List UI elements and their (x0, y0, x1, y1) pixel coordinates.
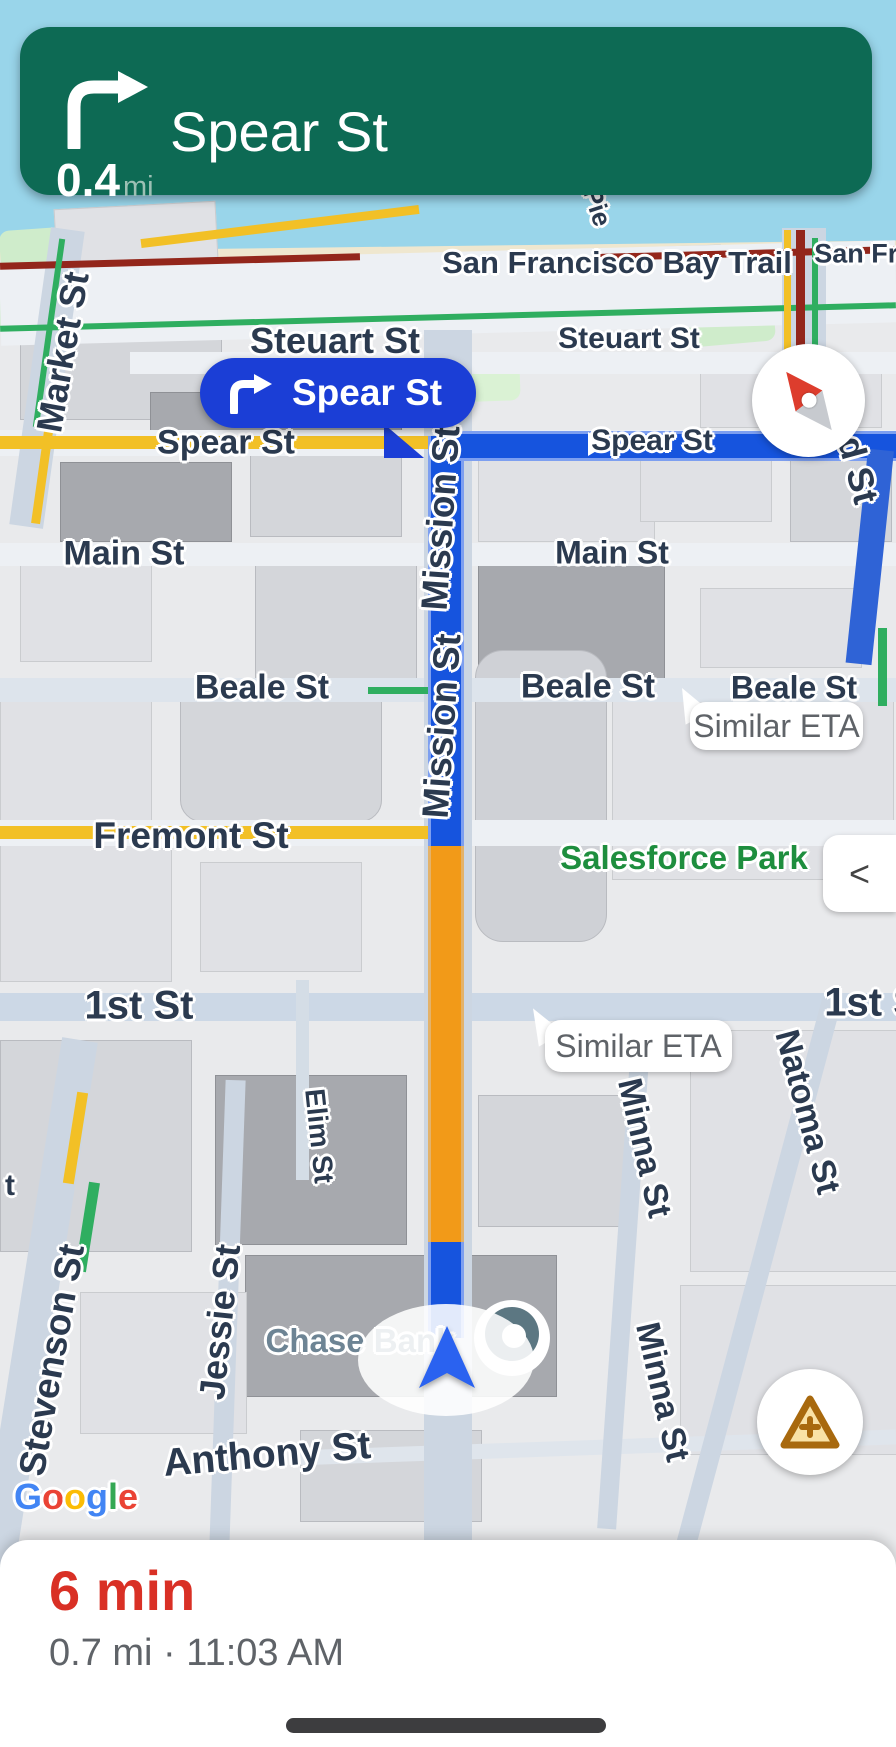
street-label: Fremont St (93, 815, 288, 857)
map-canvas[interactable]: San Francisco Bay Trail San Fran Pie Mar… (0, 0, 896, 1747)
turn-callout-tail (384, 424, 424, 458)
street-label: Main St (64, 535, 185, 574)
street-label: San Francisco Bay Trail (442, 245, 792, 281)
distance-value: 0.4 (56, 154, 120, 206)
eta-bubble-label: Similar ETA (693, 708, 860, 745)
street-label: Main St (555, 535, 669, 572)
google-logo-letter: l (108, 1476, 118, 1517)
turn-right-icon (226, 372, 274, 414)
turn-callout-label: Spear St (292, 372, 442, 414)
collapse-panel-button[interactable]: < (823, 835, 896, 912)
building (0, 840, 172, 982)
street-label: San Fran (814, 239, 896, 270)
poi-label-salesforce-park: Salesforce Park (560, 839, 808, 877)
route-segment-congestion (428, 846, 464, 1242)
street-label: Beale St (521, 668, 655, 707)
compass-button[interactable] (752, 344, 865, 457)
distance-to-turn: 0.4mi (56, 153, 154, 207)
google-logo-letter: G (14, 1476, 42, 1517)
street-label: Steuart St (558, 322, 700, 356)
google-logo-letter: e (118, 1476, 138, 1517)
street-label: 1st S (824, 981, 896, 1026)
street-label: Beale St (731, 670, 857, 707)
traffic-jam-line (796, 230, 805, 352)
building (0, 1040, 192, 1252)
building (20, 565, 152, 662)
trip-summary-sheet[interactable]: 6 min 0.7 mi · 11:03 AM (0, 1540, 896, 1747)
building (478, 455, 655, 542)
building (60, 462, 232, 542)
eta-alternative-bubble[interactable]: Similar ETA (545, 1020, 732, 1072)
trip-distance-arrival: 0.7 mi · 11:03 AM (49, 1632, 344, 1675)
street-label: t (5, 1169, 15, 1203)
google-logo: Google (14, 1476, 138, 1518)
transit-line (878, 628, 887, 706)
turn-right-arrow-icon (60, 69, 160, 149)
building (200, 862, 362, 972)
google-logo-letter: g (86, 1476, 108, 1517)
building (0, 690, 152, 822)
navigation-screen: San Francisco Bay Trail San Fran Pie Mar… (0, 0, 896, 1747)
street-label: Spear St (157, 424, 295, 463)
google-logo-letter: o (64, 1476, 86, 1517)
building (250, 455, 402, 537)
street-label: 1st St (85, 984, 194, 1029)
distance-unit: mi (123, 171, 154, 203)
turn-callout: Spear St (200, 358, 476, 428)
eta-alternative-bubble[interactable]: Similar ETA (690, 702, 863, 750)
next-street-name: Spear St (170, 99, 388, 164)
building (700, 588, 862, 668)
building (255, 560, 417, 680)
chevron-left-icon: < (849, 853, 870, 895)
compass-needle-icon (772, 361, 844, 440)
street-label: Beale St (195, 669, 329, 708)
building (478, 1095, 630, 1227)
navigation-instruction-banner[interactable]: 0.4mi Spear St (20, 27, 872, 195)
location-puck-arrow (413, 1322, 481, 1398)
home-indicator (286, 1718, 606, 1733)
street-label: Steuart St (250, 320, 420, 362)
google-logo-letter: o (42, 1476, 64, 1517)
trip-eta: 6 min (49, 1558, 195, 1623)
eta-bubble-label: Similar ETA (555, 1028, 722, 1065)
warning-triangle-icon (778, 1393, 842, 1451)
street-label: Spear St (591, 424, 713, 458)
report-incident-button[interactable] (757, 1369, 863, 1475)
